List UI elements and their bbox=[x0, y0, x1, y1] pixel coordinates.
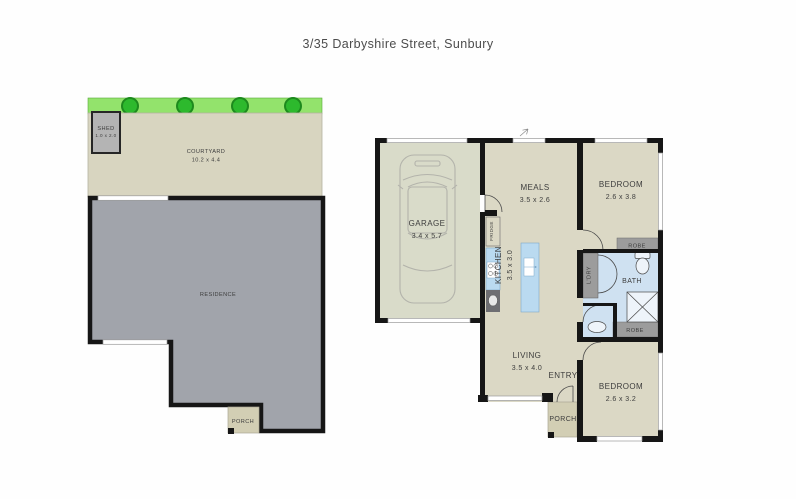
shed-dims: 1.0 x 2.0 bbox=[95, 133, 116, 138]
kitchen-dims: 3.5 x 3.0 bbox=[507, 250, 514, 280]
entry-label: ENTRY bbox=[549, 371, 578, 380]
site-porch-label: PORCH bbox=[232, 419, 254, 425]
fridge-label: FRIDGE bbox=[489, 221, 494, 241]
garage-floor bbox=[380, 143, 480, 318]
floorplan-page: 3/35 Darbyshire Street, Sunbury COURTYAR… bbox=[0, 0, 796, 499]
plan-marker-icon bbox=[520, 129, 528, 136]
meals-dims: 3.5 x 2.6 bbox=[520, 197, 550, 204]
porch-post bbox=[228, 428, 234, 434]
bedroom2-window bbox=[597, 437, 642, 442]
bedroom2-side-window bbox=[659, 353, 663, 430]
living-window bbox=[488, 396, 542, 401]
living-dims: 3.5 x 4.0 bbox=[512, 365, 542, 372]
laundry-label: L'DRY bbox=[587, 266, 593, 284]
living-label: LIVING bbox=[513, 351, 542, 360]
tree-icon bbox=[177, 98, 193, 114]
tree-icon bbox=[232, 98, 248, 114]
tree-icon bbox=[285, 98, 301, 114]
residence-window bbox=[98, 196, 168, 201]
garage-window bbox=[388, 319, 470, 323]
bedroom2-dims: 2.6 x 3.2 bbox=[606, 396, 636, 403]
page-title: 3/35 Darbyshire Street, Sunbury bbox=[0, 37, 796, 51]
residence-label: RESIDENCE bbox=[200, 292, 236, 298]
bath-label: BATH bbox=[622, 278, 642, 285]
residence-window bbox=[103, 340, 167, 345]
shower-icon bbox=[627, 292, 658, 322]
garage-window bbox=[387, 139, 467, 143]
courtyard-area bbox=[88, 113, 322, 197]
garage-dims: 3.4 x 5.7 bbox=[412, 233, 442, 240]
toilet-icon bbox=[635, 253, 650, 275]
shed-label: SHED bbox=[97, 126, 114, 132]
porch-label: PORCH bbox=[549, 416, 576, 423]
courtyard-label: COURTYARD bbox=[187, 149, 226, 155]
island-bench bbox=[521, 243, 539, 312]
bedroom1-window bbox=[595, 139, 647, 143]
garage-label: GARAGE bbox=[409, 219, 446, 228]
courtyard-dims: 10.2 x 4.4 bbox=[192, 158, 221, 164]
bedroom1-side-window bbox=[659, 153, 663, 230]
kitchen-label: KITCHEN bbox=[494, 246, 503, 284]
robe-top-label: ROBE bbox=[628, 244, 645, 250]
bedroom1-dims: 2.6 x 3.8 bbox=[606, 194, 636, 201]
floor-plan: GARAGE 3.4 x 5.7 MEALS 3.5 x 2.6 BEDROOM… bbox=[370, 125, 670, 450]
bedroom2-label: BEDROOM bbox=[599, 382, 643, 391]
tree-icon bbox=[122, 98, 138, 114]
meals-window bbox=[513, 139, 545, 143]
residence-outline bbox=[90, 198, 323, 431]
sink-icon bbox=[489, 295, 498, 306]
bedroom1-label: BEDROOM bbox=[599, 180, 643, 189]
robe-bottom-label: ROBE bbox=[626, 328, 643, 334]
tap-icon bbox=[535, 266, 537, 268]
wc-toilet-icon bbox=[588, 322, 606, 333]
meals-label: MEALS bbox=[520, 183, 549, 192]
site-plan: COURTYARD 10.2 x 4.4 SHED 1.0 x 2.0 RESI… bbox=[80, 90, 330, 460]
